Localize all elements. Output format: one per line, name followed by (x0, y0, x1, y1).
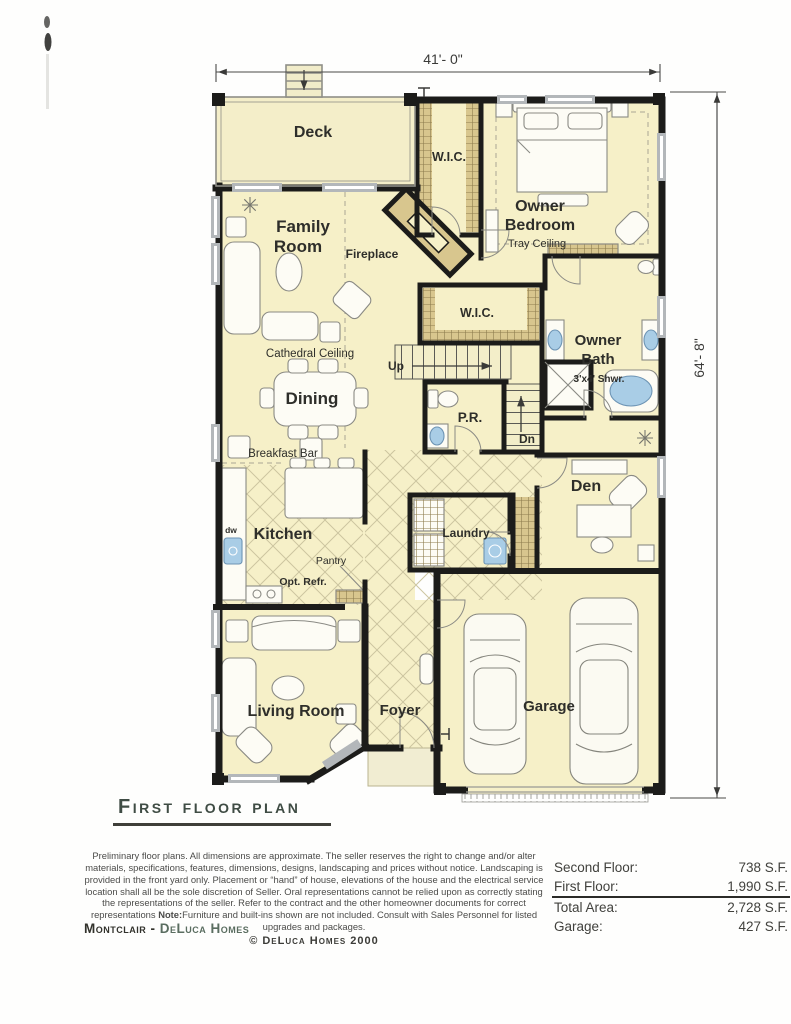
area-value: 2,728 S.F. (727, 898, 788, 917)
label-wic-2: W.I.C. (460, 306, 494, 320)
label-pantry: Pantry (316, 555, 347, 567)
label-breakfast-bar: Breakfast Bar (248, 448, 318, 460)
brand-separator: - (146, 921, 160, 936)
area-value: 738 S.F. (738, 858, 788, 877)
label-opt-refrigerator: Opt. Refr. (279, 576, 326, 588)
brand-footer: Montclair - DeLuca Homes (84, 921, 249, 936)
scan-smudge (44, 16, 52, 109)
area-row-second-floor: Second Floor: 738 S.F. (552, 858, 790, 877)
label-living-room: Living Room (248, 703, 345, 720)
car (464, 614, 526, 774)
label-family-2: Room (274, 237, 322, 256)
area-label: Garage: (554, 917, 603, 936)
area-label: Total Area: (554, 898, 618, 917)
label-laundry: Laundry (442, 526, 490, 540)
builder-name: DeLuca Homes (160, 921, 250, 936)
washer (484, 538, 506, 564)
kitchen-sink (224, 538, 242, 564)
garage-door (462, 787, 648, 802)
label-down: Dn (519, 432, 535, 446)
label-den: Den (571, 478, 601, 495)
width-dimension: 41'- 0" (423, 51, 463, 67)
label-kitchen: Kitchen (254, 526, 313, 543)
area-value: 1,990 S.F. (727, 877, 788, 896)
label-shower: 3'x4' Shwr. (574, 374, 625, 385)
model-name: Montclair (84, 921, 146, 936)
foyer-console (420, 654, 433, 684)
title-underline (113, 823, 331, 826)
plant-icon (637, 430, 653, 446)
label-up: Up (388, 359, 404, 373)
label-owner-bath-1: Owner (575, 332, 622, 349)
label-family-1: Family (276, 217, 330, 236)
area-table: Second Floor: 738 S.F. First Floor: 1,99… (552, 858, 790, 936)
car (570, 598, 638, 784)
area-label: Second Floor: (554, 858, 638, 877)
label-deck: Deck (294, 124, 332, 141)
plant-icon (242, 197, 258, 213)
area-value: 427 S.F. (738, 917, 788, 936)
label-tray-ceiling: Tray Ceiling (508, 238, 566, 250)
label-owner-bedroom-1: Owner (515, 198, 565, 215)
label-fireplace: Fireplace (346, 247, 399, 261)
area-label: First Floor: (554, 877, 619, 896)
scanned-floorplan-page: 41'- 0" 64'- 8" Deck Family Room Firepla… (0, 0, 791, 1024)
area-row-garage: Garage: 427 S.F. (552, 917, 790, 936)
area-row-total: Total Area: 2,728 S.F. (552, 896, 790, 917)
label-owner-bath-2: Bath (581, 351, 614, 368)
copyright: © DeLuca Homes 2000 (84, 935, 544, 949)
label-dining: Dining (286, 389, 339, 408)
label-garage: Garage (523, 698, 575, 715)
label-dishwasher: dw (225, 525, 237, 535)
area-row-first-floor: First Floor: 1,990 S.F. (552, 877, 790, 896)
label-cathedral-ceiling: Cathedral Ceiling (266, 348, 354, 360)
label-foyer: Foyer (380, 702, 421, 719)
label-powder-room: P.R. (458, 410, 483, 425)
page-title: First floor plan (118, 796, 300, 819)
disclaimer-note-label: Note: (158, 909, 182, 920)
label-wic-1: W.I.C. (432, 150, 466, 164)
label-owner-bedroom-2: Bedroom (505, 217, 575, 234)
height-dimension: 64'- 8" (691, 338, 707, 378)
